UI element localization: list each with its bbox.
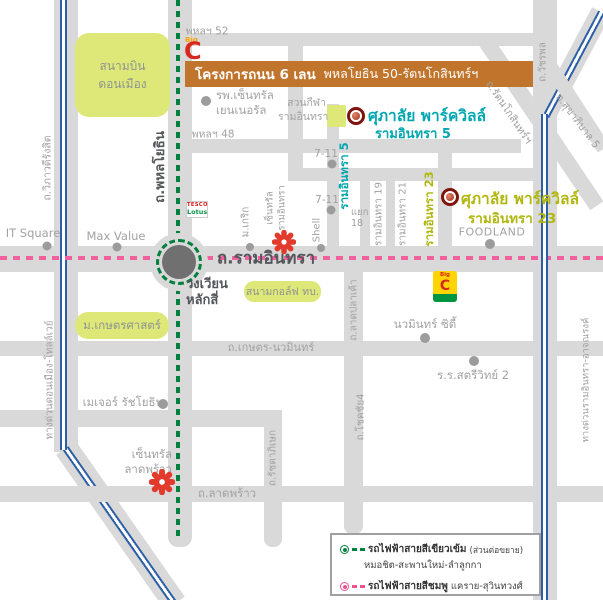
label-phahonyothin: ถ.พหลโยธิน	[148, 131, 170, 203]
place-major-ratchayothin: เมเจอร์ รัชโยธิน	[83, 394, 164, 412]
bigc-extra-band: extra	[433, 294, 457, 302]
project-ramintra23-road: รามอินทรา 23	[468, 207, 556, 229]
legend-pink-name: รถไฟฟ้าสายสีชมพู	[368, 579, 448, 594]
legend-green-route: หมอชิต-สะพานใหม่-ลำลูกกา	[364, 558, 531, 573]
dot-krirk	[246, 243, 254, 251]
label-ladplakao: ถ.ลาดปลาเค้า	[347, 279, 362, 340]
legend-pink-route: แคราย-สุวินทวงศ์	[451, 579, 523, 594]
central-flower-icon-ladprao	[149, 469, 175, 499]
area-donmueang-airport: สนามบิน ดอนเมือง	[75, 33, 170, 117]
place-max-value: Max Value	[86, 229, 145, 243]
label-soi-ramintra21: รามอินทรา 21	[396, 182, 411, 246]
banner-route-text: พหลโยธิน 50-รัตนโกสินทร์ฯ	[324, 64, 479, 84]
label-ratchadaphisek: ถ.รัชดาภิเษก	[266, 430, 281, 486]
dot-satriwit2	[469, 356, 479, 366]
dot-it-square	[43, 242, 52, 251]
dot-navamin-city	[420, 333, 430, 343]
green-dash-icon	[360, 548, 365, 551]
pink-station-icon	[340, 582, 349, 591]
label-soi-ramintra19: รามอินทรา 19	[372, 182, 387, 246]
roundabout-center	[162, 245, 196, 279]
bigc-extra-logo: Big C extra	[433, 271, 457, 302]
place-satriwit2-school: ร.ร.สตรีวิทย์ 2	[437, 367, 509, 385]
dot-major-ratchayothin	[158, 399, 168, 409]
place-seven11-upper: 7-11	[314, 148, 338, 160]
place-seven11-lower: 7-11	[315, 194, 339, 206]
place-central-ramintra: เซ็นทรัล รามอินทรา	[265, 185, 290, 231]
green-station-icon	[340, 545, 349, 554]
label-ramintra: ถ.รามอินทรา	[217, 245, 315, 272]
label-phahon48: พหลฯ 48	[192, 126, 235, 143]
tesco-lotus-logo: TESCO Lotus	[186, 201, 208, 218]
place-it-square: IT Square	[6, 226, 61, 240]
map-canvas: สนามบิน ดอนเมือง ม.เกษตรศาสตร์ สนามกอล์ฟ…	[0, 0, 603, 600]
road-soi21	[386, 179, 395, 246]
label-kaset-nawamin: ถ.เกษตร-นวมินทร์	[228, 338, 314, 356]
banner-project-text: โครงการถนน 6 เลน	[195, 63, 316, 85]
label-expressway: ทางด่วนรามอินทรา-อาจณรงค์	[579, 318, 594, 443]
pink-dash-icon	[352, 585, 357, 588]
area-golf-course: สนามกอล์ฟ ทบ.	[244, 281, 321, 302]
place-krirk-university: ม.เกริก	[239, 207, 254, 238]
road-collector	[288, 168, 540, 181]
pink-dash-icon	[360, 585, 365, 588]
place-central-general-hospital: รพ.เซ็นทรัล เยนเนอรัล	[216, 88, 274, 118]
central-flower-icon-ramintra	[272, 230, 296, 258]
label-chokchai4: ถ.โชคชัย4	[354, 393, 369, 440]
project-ramintra5-road: รามอินทรา 5	[375, 123, 451, 144]
dot-max-value	[113, 243, 122, 252]
label-ladprao: ถ.ลาดพร้าว	[198, 485, 256, 503]
bigc-extra-c-text: C	[433, 279, 457, 293]
green-rail-line-south	[176, 288, 180, 538]
dot-hospital	[201, 96, 211, 106]
bigc-logo-c-text: C	[184, 39, 202, 63]
supalai-marker-ramintra23	[441, 188, 459, 206]
supalai-marker-ramintra5	[347, 107, 365, 125]
area-kasetsart-university: ม.เกษตรศาสตร์	[75, 312, 169, 339]
dot-foodland	[485, 239, 495, 249]
dot-shell	[317, 244, 325, 252]
label-wongwian-laksi: วงเวียน หลักสี่	[186, 277, 228, 310]
place-sport-park: สวนกีฬา รามอินทรา	[278, 97, 326, 124]
project-banner: โครงการถนน 6 เลน พหลโยธิน 50-รัตนโกสินทร…	[185, 61, 533, 87]
bigc-logo: Big C	[183, 36, 211, 64]
place-navamin-city: นวมินทร์ ซิตี้	[394, 316, 456, 334]
pink-rail-line-west	[0, 256, 152, 260]
dot-seven11-lower	[327, 206, 336, 215]
legend-green-note: (ส่วนต่อขยาย)	[470, 543, 524, 557]
green-dash-icon	[352, 548, 357, 551]
area-sport-park	[327, 105, 346, 127]
dot-seven11-upper	[328, 160, 337, 169]
green-rail-line-north	[176, 0, 180, 238]
label-watcharaphon: ถ.วัชรพล	[536, 42, 551, 82]
tollway-line	[60, 0, 67, 450]
label-soi-ramintra23: รามอินทรา 23	[421, 171, 439, 246]
label-vibhavadi: ถ.วิภาวดีรังสิต	[39, 135, 56, 200]
legend-box: รถไฟฟ้าสายสีเขียวเข้ม (ส่วนต่อขยาย) หมอช…	[330, 533, 541, 596]
road-ladprao	[0, 486, 603, 502]
label-tollway: ทางด่วนดอนเมือง-โทลล์เวย์	[43, 321, 58, 440]
place-shell: Shell	[312, 218, 323, 242]
lotus-text: Lotus	[187, 209, 207, 216]
legend-green-name: รถไฟฟ้าสายสีเขียวเข้ม	[368, 542, 467, 557]
label-yaek18: แยก 18	[351, 208, 368, 230]
